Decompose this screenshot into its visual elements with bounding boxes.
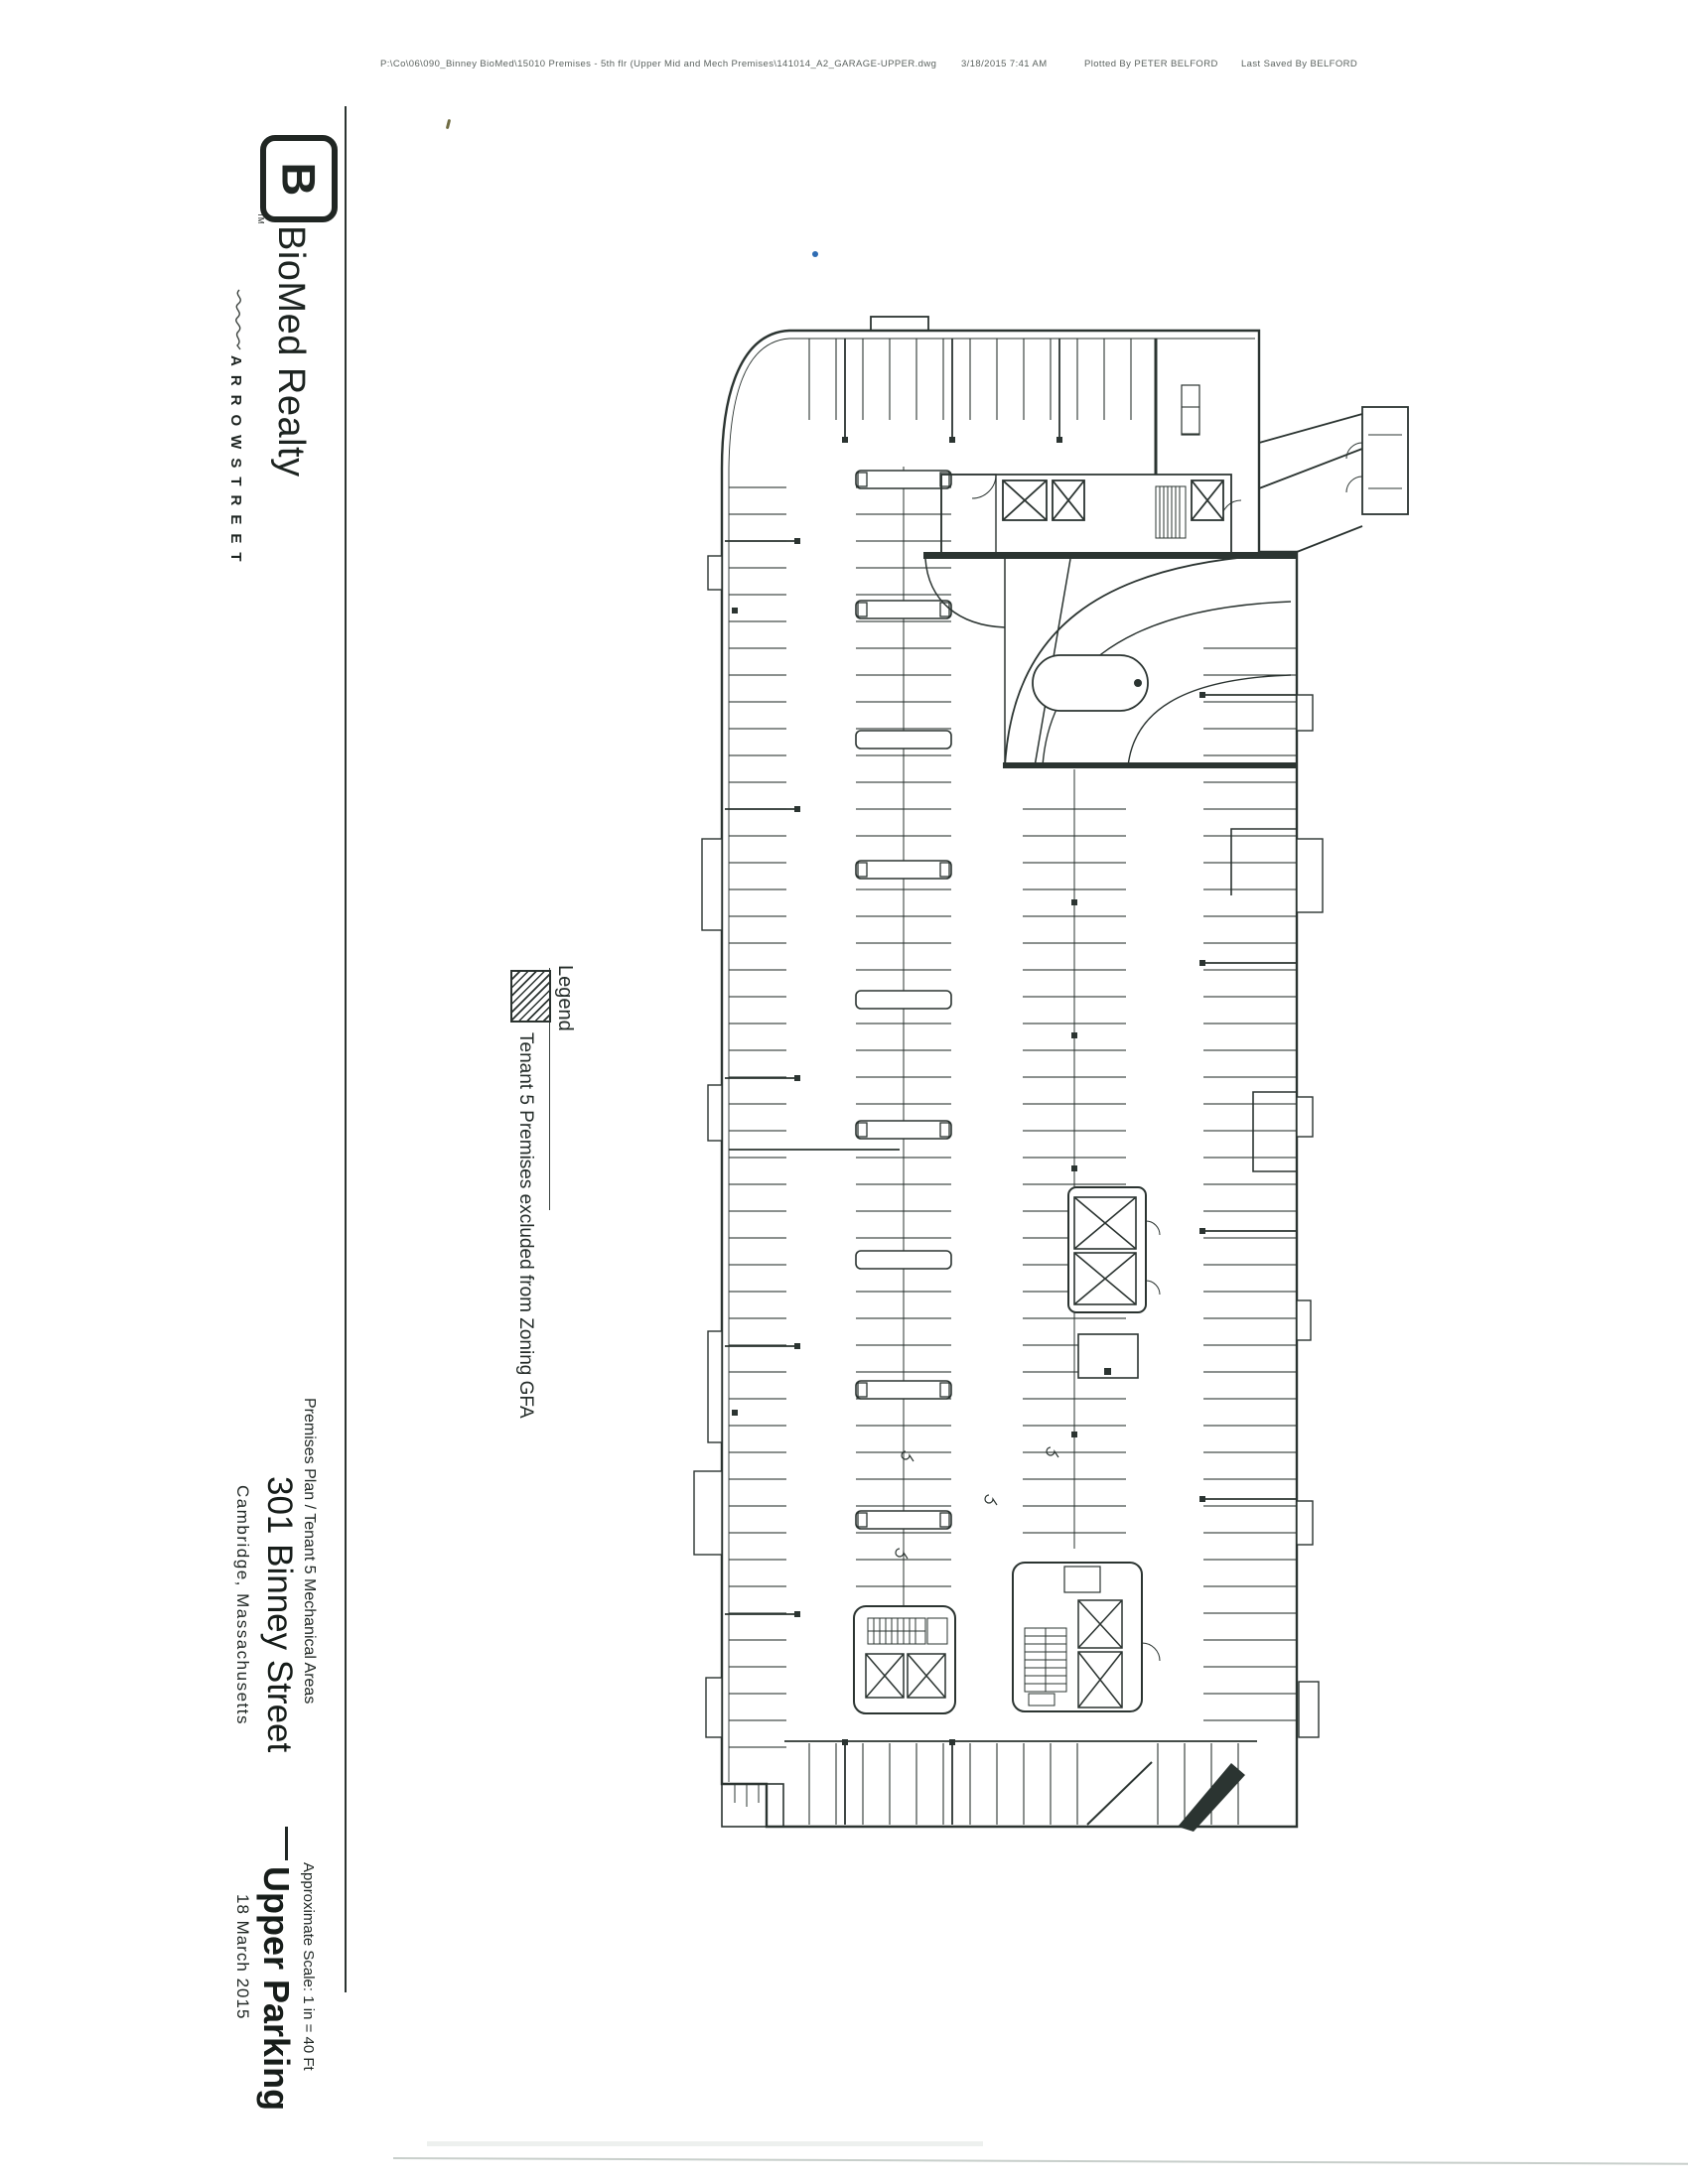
biomed-logo-icon: B [260, 135, 338, 222]
column-markers [732, 437, 1205, 1745]
scale-note: Approximate Scale: 1 in = 40 Ft [300, 1862, 317, 2071]
city: Cambridge, Massachusetts [232, 1485, 252, 1725]
legend-hatch-swatch [510, 970, 551, 1023]
stair-core-left [854, 1606, 955, 1713]
logo-monogram: B [275, 162, 322, 196]
left-wall-jogs [694, 556, 722, 1737]
title-divider [285, 1827, 288, 1860]
logo-tm-mark: TM [256, 212, 265, 224]
legend-item-label: Tenant 5 Premises excluded from Zoning G… [514, 1032, 536, 1419]
arrowstreet-script-logo [229, 288, 249, 351]
sheet-name: Upper Parking [255, 1866, 297, 2111]
entry-drive-annex [1259, 407, 1408, 552]
plot-date: 3/18/2015 7:41 AM [961, 59, 1048, 69]
title-block-separator [345, 106, 347, 1992]
architect-name: ARROWSTREET [227, 355, 244, 571]
legend-title: Legend [553, 965, 576, 1031]
plan-title: Premises Plan / Tenant 5 Mechanical Area… [300, 1398, 318, 1704]
address: 301 Binney Street [259, 1476, 299, 1752]
upper-elevator-lobby [923, 475, 1297, 559]
scan-speck [446, 119, 451, 129]
stair-core-right [1013, 1563, 1160, 1711]
mid-elevator-core [1068, 1187, 1160, 1378]
page-bottom-scan-line [393, 2157, 1688, 2164]
blue-ink-dot [812, 251, 818, 257]
sheet-date: 18 March 2015 [232, 1894, 252, 2019]
plot-file-path: P:\Co\06\090_Binney BioMed\15010 Premise… [380, 59, 936, 69]
floor-plan-svg [685, 298, 1420, 1846]
scan-smudge [427, 2141, 983, 2146]
last-saved-by: Last Saved By BELFORD [1241, 59, 1357, 69]
plotted-by: Plotted By PETER BELFORD [1084, 59, 1218, 69]
company-name: BioMed Realty [269, 225, 312, 478]
